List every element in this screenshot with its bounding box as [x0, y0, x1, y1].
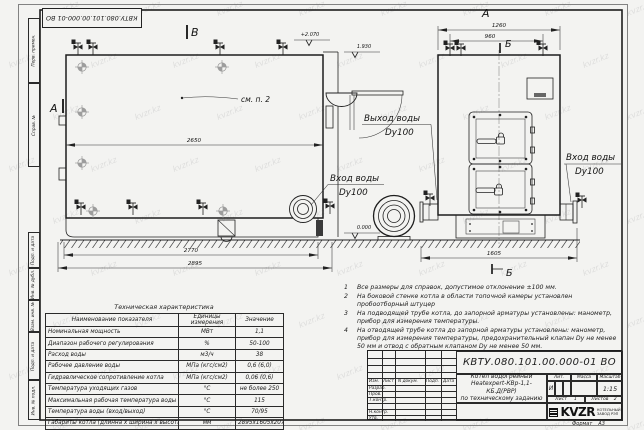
col-data: Дата — [443, 379, 454, 384]
valve-icon — [127, 200, 138, 216]
valve-icon — [324, 199, 335, 215]
sheet-cell: Лист 1 — [547, 396, 585, 403]
note-item: 1Все размеры для справок, допустимое отк… — [344, 284, 622, 292]
mass-header: Масса — [571, 374, 597, 381]
spec-row: Максимальная рабочая температура воды°С1… — [46, 395, 284, 406]
kvzr-logo-text: KVZR — [560, 405, 595, 419]
dim-1605: 1605 — [487, 251, 502, 257]
note-item: 3На подводящей трубе котла, до запорной … — [344, 310, 622, 326]
dim-2770: 2770 — [184, 248, 199, 254]
spec-row: Гидравлическое сопротивление котлаМПа (к… — [46, 372, 284, 383]
elevation-mid: 1.930 — [357, 44, 371, 50]
margin-cell-podp-data-2: Подп. и дата — [28, 332, 40, 380]
title-block: Изм. Лист N докум. Подп. Дата Разраб. Пр… — [367, 350, 622, 420]
dim-2650: 2650 — [187, 138, 202, 144]
inlet-front-label: Вход воды — [566, 153, 615, 163]
ground-line — [60, 240, 580, 248]
fan — [374, 196, 415, 241]
section-mark-v: В — [191, 26, 199, 39]
drawing-sheet: kvzr.kzkvzr.kzkvzr.kzkvzr.kzkvzr.kzkvzr.… — [0, 0, 644, 430]
lit-value: И — [547, 381, 555, 396]
valve-icon — [537, 41, 548, 57]
row-tkontr: Т.контр. — [369, 398, 388, 403]
col-list: Лист — [383, 379, 394, 384]
doc-number: КВТУ.080.101.00.000-01 ВО — [456, 351, 623, 374]
spec-row: Расход водым3/ч38 — [46, 349, 284, 360]
notes-list: 1Все размеры для справок, допустимое отк… — [344, 284, 622, 352]
note-item: 4На отводящей трубе котла до запорной ар… — [344, 327, 622, 351]
inlet-side-label: Вход воды — [330, 174, 379, 184]
valve-icon — [455, 41, 466, 57]
datum-target-icon — [75, 105, 89, 119]
margin-cell-inv-podl: Инв. № подл. — [28, 380, 40, 420]
section-mark-b-bottom: Б — [506, 268, 513, 279]
valve-icon — [277, 40, 288, 56]
margin-cell-vzam-inv: Взам. инв. № — [28, 300, 40, 332]
boiler-side-view: см. п. 2 В А — [49, 25, 403, 242]
inlet-side-dn-label: Dy100 — [339, 188, 368, 198]
valve-icon — [214, 40, 225, 56]
valve-icon — [444, 41, 455, 57]
col-docum: N докум. — [398, 379, 418, 384]
dim-2895: 2895 — [188, 261, 203, 267]
row-nkontr: Н.контр. — [369, 410, 388, 415]
empty-cell — [456, 403, 547, 421]
company-logo: KVZR КОТЕЛЬНЫЙ ЗАВОД РЭП — [547, 403, 623, 421]
elevation-zero: 0.000 — [357, 225, 371, 231]
mass-value — [571, 381, 597, 396]
spec-row: Диапазон рабочего регулирования%50-100 — [46, 338, 284, 349]
spec-header-row: Наименование показателя Единицы измерени… — [46, 314, 284, 327]
stamp-code: КВТУ.080.101.00.000-01 ВО — [46, 14, 137, 22]
outlet-label: Выход воды — [364, 114, 420, 124]
margin-cell-sprav-no: Справ. № — [28, 83, 40, 167]
row-prov: Пров. — [369, 392, 382, 397]
col-izm: Изм. — [369, 379, 379, 384]
elevation-top: +2.070 — [301, 32, 320, 38]
lit-cell-3 — [563, 381, 571, 396]
pipe-labels: Выход воды Dy100 Вход воды Dy100 Вход во… — [311, 114, 621, 205]
row-razrab: Разраб. — [369, 386, 386, 391]
margin-cell-podp-data-1: Подп. и дата — [28, 232, 40, 268]
note-item: 2На боковой стенке котла в области топоч… — [344, 293, 622, 309]
section-mark-b-top: Б — [505, 39, 512, 50]
margin-cell-inv-dubl: Инв. № дубл. — [28, 268, 40, 300]
datum-target-icon — [215, 60, 229, 74]
spec-row: Температура уходящих газов°Сне более 250 — [46, 383, 284, 394]
spec-row: Рабочее давление водыМПа (кгс/см2)0,6 (6… — [46, 361, 284, 372]
sheets-cell: Листов 2 — [585, 396, 623, 403]
company-name: КОТЕЛЬНЫЙ ЗАВОД РЭП — [597, 408, 621, 416]
see-note-label: см. п. 2 — [241, 95, 270, 104]
scale-value: 1:15 — [597, 381, 623, 396]
lit-cell-2 — [555, 381, 563, 396]
spec-table-title: Техническая характеристика — [45, 303, 283, 311]
datum-target-icon — [75, 156, 89, 170]
product-name: Котел водогрейный Heatexpert-КВр-1,1-КБ.… — [456, 374, 547, 403]
lit-header: Лит. — [547, 374, 571, 381]
margin-cell-perv-primen: Перв. примен. — [28, 18, 40, 83]
spec-row: Номинальная мощностьМВт1,1 — [46, 327, 284, 338]
stamp-box: КВТУ.080.101.00.000-01 ВО — [42, 8, 142, 28]
col-podp: Подп. — [426, 379, 439, 384]
outlet-dn-label: Dy100 — [385, 128, 414, 138]
format-note: Формат А3 — [572, 421, 630, 427]
valve-icon — [197, 200, 208, 216]
datum-target-icon — [75, 60, 89, 74]
inlet-front-dn-label: Dy100 — [575, 167, 604, 177]
spec-table: Техническая характеристика Наименование … — [45, 303, 283, 430]
datum-target-icon — [86, 204, 100, 218]
section-mark-a-side: А — [49, 102, 58, 115]
dim-960: 960 — [485, 34, 496, 40]
valve-icon — [72, 40, 83, 56]
spec-row: Габариты котла (длинна х ширина х высота… — [46, 418, 284, 429]
dim-1260: 1260 — [492, 23, 507, 29]
datum-target-icon — [216, 204, 230, 218]
kvzr-logo-icon — [549, 408, 558, 417]
valve-icon — [87, 40, 98, 56]
spec-row: Температура воды (вход/выход)°С70/95 — [46, 406, 284, 417]
row-utv: Утв. — [369, 416, 378, 421]
section-mark-a-front: А — [481, 7, 490, 20]
valve-icon — [75, 200, 86, 216]
scale-header: Масштаб — [597, 374, 623, 381]
boiler-front-view: А — [420, 7, 587, 244]
